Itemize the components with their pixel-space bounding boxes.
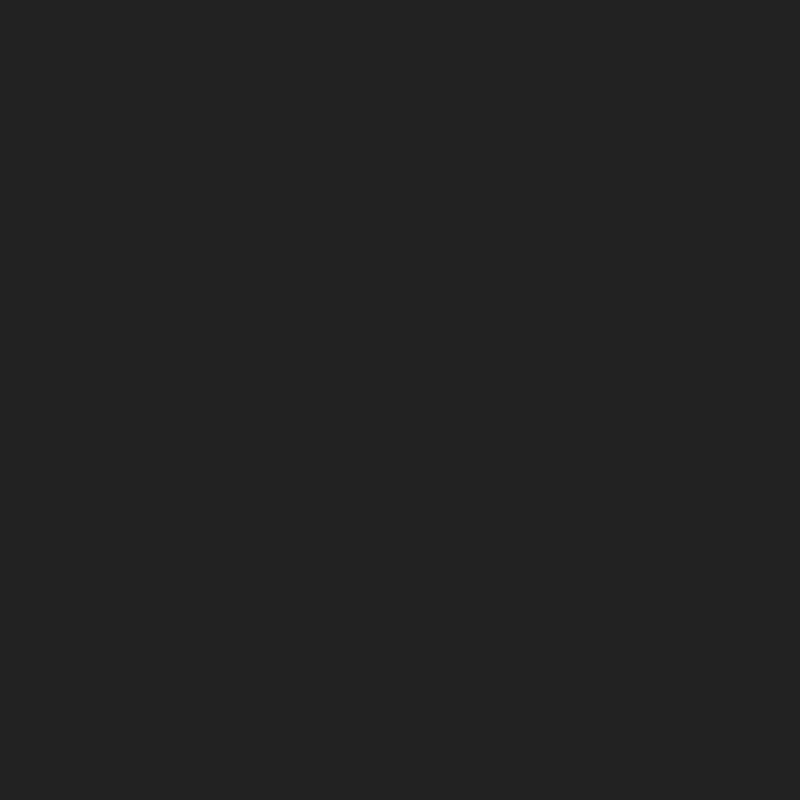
product-photo-rug-cream-burgundy: [400, 0, 800, 400]
product-photo-rug-terracotta: [0, 0, 400, 400]
product-photo-rug-red-rings: [400, 400, 800, 800]
product-photo-rug-black-purple: [0, 400, 400, 800]
rug-product-collage: [0, 0, 800, 800]
